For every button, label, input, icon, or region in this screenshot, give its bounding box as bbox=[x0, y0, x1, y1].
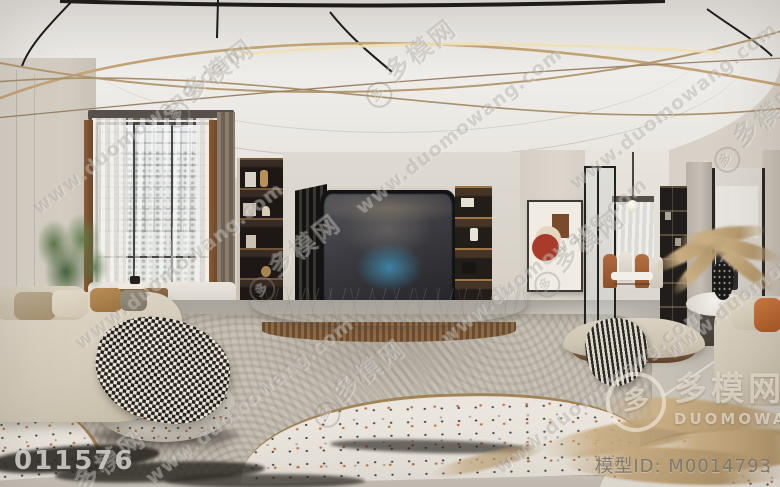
dining-table bbox=[611, 272, 653, 280]
shelf-item-box bbox=[462, 262, 476, 274]
dining-chair-orange bbox=[603, 254, 617, 288]
panorama-interior-scene: www.duomowang.com 多多模网 www.duomowang.com… bbox=[0, 0, 780, 487]
watermark-brand-logo: 多 多模网 DUOMOWANG bbox=[606, 372, 780, 432]
ink-stroke bbox=[165, 474, 365, 487]
dining-chair-orange bbox=[635, 254, 649, 288]
model-id-text: 模型ID: M0014793 bbox=[595, 452, 772, 478]
shelf-item-books bbox=[245, 172, 256, 187]
shelf-item-books bbox=[461, 198, 474, 207]
cushion-taupe bbox=[14, 292, 56, 320]
scene-id-text: 011576 bbox=[14, 446, 135, 476]
cushion-cream bbox=[52, 290, 88, 317]
brand-name-cn: 多模网 bbox=[674, 372, 780, 406]
shelf-item-books bbox=[246, 235, 256, 248]
orange-pillow bbox=[754, 298, 780, 332]
shelf-item-vase bbox=[470, 228, 478, 241]
brand-logo-icon: 多 bbox=[606, 372, 666, 432]
brand-name-latin: DUOMOWANG bbox=[674, 410, 780, 428]
cabinet-glassware bbox=[665, 212, 671, 220]
